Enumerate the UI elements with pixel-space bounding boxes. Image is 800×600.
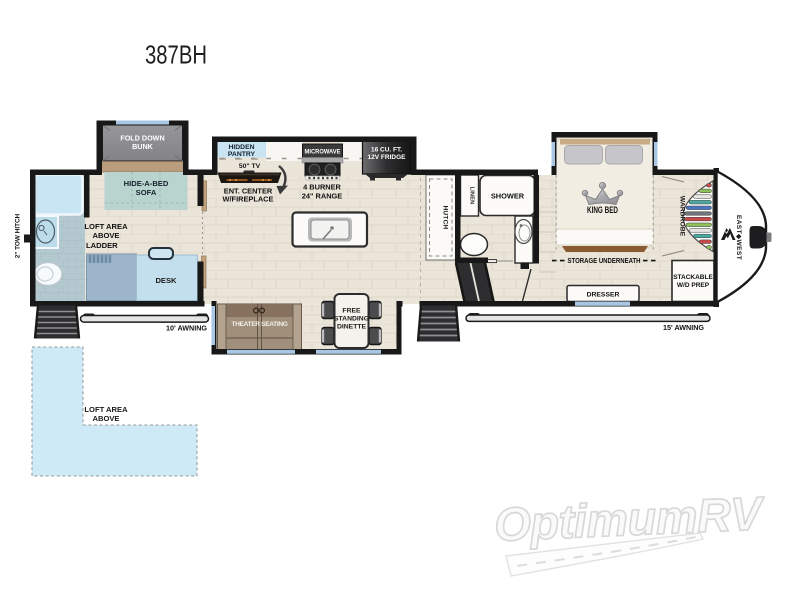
svg-text:DRESSER: DRESSER — [587, 292, 620, 299]
svg-text:DESK: DESK — [155, 276, 177, 285]
svg-text:HIDE-A-BED: HIDE-A-BED — [124, 179, 169, 188]
svg-text:HUTCH: HUTCH — [442, 206, 449, 230]
svg-text:KING BED: KING BED — [587, 205, 618, 215]
svg-text:MICROWAVE: MICROWAVE — [305, 149, 341, 156]
svg-text:10' AWNING: 10' AWNING — [166, 324, 207, 333]
svg-text:LINEN: LINEN — [469, 187, 475, 205]
svg-text:4 BURNER: 4 BURNER — [303, 183, 341, 192]
svg-text:ABOVE: ABOVE — [92, 231, 119, 240]
svg-text:12V FRIDGE: 12V FRIDGE — [368, 154, 407, 161]
svg-text:2" TOW HITCH: 2" TOW HITCH — [15, 213, 22, 258]
svg-text:50" TV: 50" TV — [239, 163, 261, 170]
svg-text:HIDDEN: HIDDEN — [228, 144, 254, 151]
svg-text:SOFA: SOFA — [136, 188, 157, 197]
svg-text:16 CU. FT.: 16 CU. FT. — [371, 147, 402, 154]
svg-text:PANTRY: PANTRY — [228, 151, 256, 158]
svg-text:DINETTE: DINETTE — [337, 324, 367, 331]
svg-text:FREE: FREE — [342, 308, 361, 315]
svg-text:STORAGE UNDERNEATH: STORAGE UNDERNEATH — [568, 256, 641, 265]
svg-text:STACKABLE: STACKABLE — [673, 274, 713, 281]
svg-text:EAST◆WEST: EAST◆WEST — [735, 215, 742, 260]
svg-text:387BH: 387BH — [145, 40, 207, 70]
svg-text:WARDROBE: WARDROBE — [679, 196, 686, 237]
svg-text:SHOWER: SHOWER — [491, 192, 525, 201]
svg-text:THEATER SEATING: THEATER SEATING — [231, 321, 287, 328]
svg-text:STANDING: STANDING — [334, 316, 369, 323]
svg-text:15' AWNING: 15' AWNING — [663, 323, 704, 332]
svg-text:LOFT AREA: LOFT AREA — [84, 405, 128, 414]
svg-text:ABOVE: ABOVE — [92, 414, 119, 423]
svg-text:W/FIREPLACE: W/FIREPLACE — [223, 195, 274, 204]
svg-text:BUNK: BUNK — [132, 142, 154, 151]
svg-text:24" RANGE: 24" RANGE — [302, 192, 343, 201]
svg-text:W/D PREP: W/D PREP — [677, 282, 710, 289]
svg-text:LADDER: LADDER — [86, 241, 118, 250]
svg-text:LOFT AREA: LOFT AREA — [84, 222, 128, 231]
